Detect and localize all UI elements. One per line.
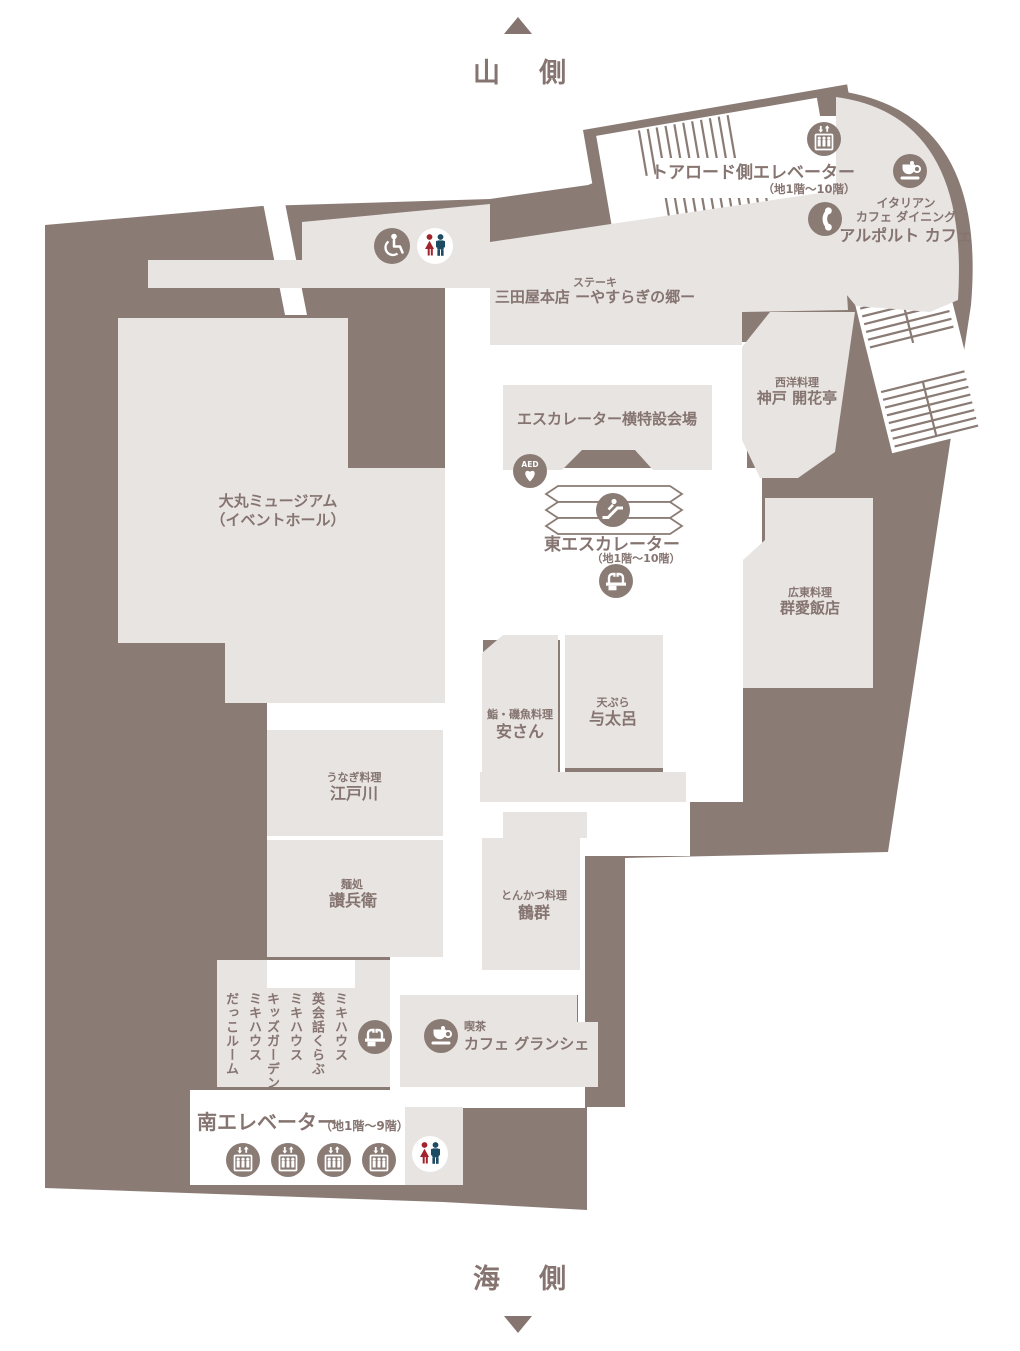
floor-map-canvas: AED <box>0 0 1020 1351</box>
shop-granche-category: 喫茶 <box>464 1021 486 1032</box>
shop-sanbei-category: 麺処 <box>341 879 363 890</box>
shop-edogawa-category: うなぎ料理 <box>327 772 382 783</box>
aed-icon <box>513 454 547 488</box>
shop-edogawa-name: 江戸川 <box>330 786 378 802</box>
shop-sandaya-name: 三田屋本店 ーやすらぎの郷ー <box>495 290 695 305</box>
miki-kids-line2: キッズガーデン <box>264 992 279 1090</box>
restroom-icon-south <box>412 1136 448 1172</box>
elevator-icon-toaroad <box>807 122 841 156</box>
sea-side-label: 海 側 <box>473 1266 581 1293</box>
aisle-gap-edogawa <box>267 836 443 840</box>
wheelchair-icon <box>374 228 410 264</box>
aisle-below-cafe <box>443 1087 585 1108</box>
toaroad-elevator-floors: （地1階〜10階） <box>762 184 855 196</box>
miki-eikaiwa-line2: 英会話くらぶ <box>309 992 324 1076</box>
shop-gunai-category: 広東料理 <box>788 587 832 598</box>
east-escalator-floors: （地1階〜10階） <box>592 553 681 564</box>
museum-label: 大丸ミュージアム <box>219 494 338 509</box>
aisle-below-steak <box>488 342 747 388</box>
room-yasusan <box>482 635 558 772</box>
water-fountain-icon-miki <box>358 1020 392 1054</box>
shop-miki-eikaiwa-label: ミキハウス 英会話くらぶ <box>305 992 351 1137</box>
coffee-cup-icon-alporto <box>893 154 927 188</box>
shop-yasusan-category: 鮨・磯魚料理 <box>487 709 553 720</box>
shop-alporto-category1: イタリアン <box>876 197 935 209</box>
toaroad-elevator-label: トアロード側エレベーター <box>651 165 855 182</box>
coffee-cup-icon-granche <box>424 1019 458 1053</box>
floor-map: AED <box>0 0 1020 1351</box>
escalator-icon <box>596 493 630 527</box>
shop-kaikatei-name: 神戸 開花亭 <box>757 391 837 406</box>
shop-miki-kids-label: ミキハウス キッズガーデン <box>260 992 306 1152</box>
shop-yasusan-name: 安さん <box>496 724 544 740</box>
miki-dakko-line2: だっこルーム <box>223 992 238 1076</box>
shop-sanbei-name: 讃兵衛 <box>329 893 377 909</box>
shop-alporto-category2: カフェ ダイニング <box>856 211 956 223</box>
miki-dakko-line1: ミキハウス <box>246 992 261 1062</box>
aisle-east <box>710 385 747 560</box>
room-nw-strip <box>148 260 302 288</box>
elevator-icon-south-4 <box>362 1143 396 1177</box>
elevator-icon-south-3 <box>317 1143 351 1177</box>
shop-yotaro-category: 天ぷら <box>597 697 630 708</box>
shop-yotaro-name: 与太呂 <box>589 711 637 727</box>
restroom-icon-north <box>417 228 453 264</box>
shop-tsurumura-category: とんかつ料理 <box>501 890 567 901</box>
shop-granche-name: カフェ グランシェ <box>464 1037 589 1052</box>
shop-kaikatei-category: 西洋料理 <box>775 377 819 388</box>
shop-sandaya-category: ステーキ <box>573 277 617 288</box>
phone-icon <box>808 202 842 236</box>
mountain-side-arrow-icon <box>504 17 532 34</box>
room-connector <box>480 772 686 802</box>
aisle-gap-sushi <box>560 633 565 772</box>
miki-eikaiwa-line1: ミキハウス <box>332 992 347 1062</box>
shop-alporto-name: アルポルト カフェ <box>839 228 972 244</box>
shop-gunai-name: 群愛飯店 <box>780 601 840 616</box>
miki-kids-line1: ミキハウス <box>287 992 302 1062</box>
shop-miki-dakko-label: ミキハウス だっこルーム <box>219 992 265 1137</box>
sea-side-arrow-icon <box>504 1316 532 1333</box>
aisle-miki-notch <box>267 960 355 988</box>
room-connector-small <box>503 812 587 838</box>
elevator-icon-south-1 <box>226 1143 260 1177</box>
aisle-above-cafe <box>443 970 585 995</box>
aisle-museum-south <box>267 703 447 730</box>
mountain-side-label: 山 側 <box>473 60 581 87</box>
museum-sub-label: （イベントホール） <box>210 513 345 528</box>
water-fountain-icon-center <box>599 564 633 598</box>
event-space-label: エスカレーター横特設会場 <box>517 412 697 427</box>
shop-tsurumura-name: 鶴群 <box>518 905 550 921</box>
